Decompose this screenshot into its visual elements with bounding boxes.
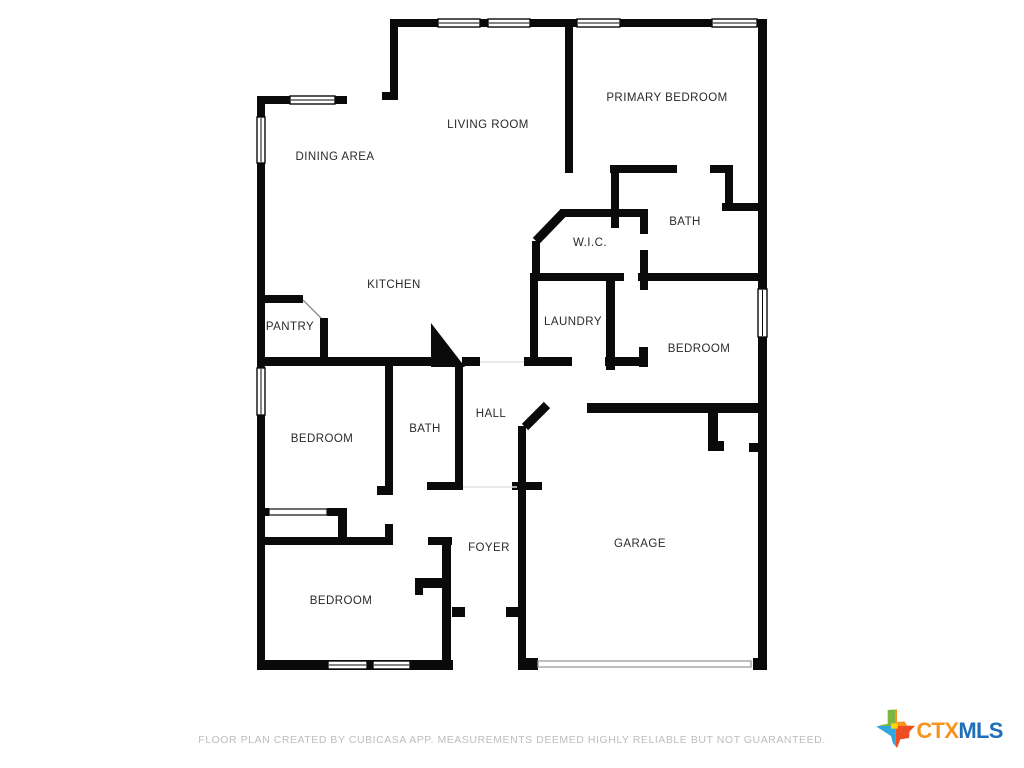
room-label-kitchen: KITCHEN [367, 279, 421, 291]
wall-segment [560, 209, 645, 217]
logo-text-ctx: CTX [916, 718, 959, 743]
wall-segment [338, 508, 347, 538]
room-label-garage: GARAGE [614, 538, 666, 550]
wall-segment [638, 273, 766, 281]
wall-segment [530, 273, 538, 365]
wall-segment [610, 165, 677, 173]
wall-segment [708, 441, 724, 451]
wall-segment [455, 363, 463, 484]
room-label-living-room: LIVING ROOM [447, 119, 529, 131]
room-label-bedroom-left: BEDROOM [291, 433, 354, 445]
wall-segment [462, 357, 480, 366]
wall-segment [390, 19, 398, 100]
wall-segment [722, 203, 766, 211]
wall-segment [257, 357, 432, 366]
wall-segment-angled [431, 323, 465, 367]
wall-segment [367, 660, 373, 670]
wall-segment [385, 363, 393, 495]
floor-plan-drawing: LIVING ROOMPRIMARY BEDROOMDINING AREABAT… [0, 0, 1024, 768]
wall-segment [518, 426, 526, 658]
wall-segment [415, 578, 423, 595]
wall-segment [518, 658, 538, 670]
wall-segment [452, 607, 465, 617]
room-label-bath-hall: BATH [409, 423, 441, 435]
garage-door [538, 661, 751, 667]
room-label-foyer: FOYER [468, 542, 510, 554]
room-label-laundry: LAUNDRY [544, 316, 602, 328]
wall-segment [257, 537, 393, 545]
room-label-dining-area: DINING AREA [295, 151, 374, 163]
wall-segment [532, 273, 624, 281]
wall-segment [587, 403, 766, 413]
wall-segment [606, 281, 615, 370]
logo-text-mls: MLS [958, 718, 1002, 743]
wall-segment [640, 250, 648, 290]
wall-segment [377, 486, 393, 495]
wall-segment [640, 209, 648, 234]
wall-segment [442, 537, 451, 668]
wall-segment [611, 165, 619, 228]
wall-segment [320, 318, 328, 362]
room-label-bedroom-bottom: BEDROOM [310, 595, 373, 607]
room-label-wic: W.I.C. [573, 237, 607, 249]
room-label-pantry: PANTRY [266, 321, 314, 333]
room-label-primary-bedroom: PRIMARY BEDROOM [606, 92, 727, 104]
wall-segment-diagonal [536, 212, 564, 241]
wall-segment [524, 357, 572, 366]
wall-segment [382, 92, 398, 100]
wall-segment [512, 482, 542, 490]
ctxmls-logo: CTXMLS [876, 708, 1010, 752]
wall-segment [257, 508, 269, 516]
room-label-hall: HALL [476, 408, 507, 420]
wall-segment-diagonal [525, 405, 547, 427]
wall-segment [749, 443, 759, 452]
wall-segment [506, 607, 519, 617]
wall-segment [385, 524, 393, 537]
room-label-bedroom-right: BEDROOM [668, 343, 731, 355]
wall-segment [565, 19, 573, 173]
logo-text: CTXMLS [916, 718, 1002, 743]
wall-segment [427, 482, 463, 490]
wall-segment [639, 347, 648, 367]
floor-plan-page: LIVING ROOMPRIMARY BEDROOMDINING AREABAT… [0, 0, 1024, 768]
wall-segment [263, 295, 303, 303]
disclaimer-text: FLOOR PLAN CREATED BY CUBICASA APP. MEAS… [0, 734, 1024, 746]
sliding-closet-door [269, 509, 327, 515]
room-label-bath-primary: BATH [669, 216, 701, 228]
texas-state-icon [876, 708, 915, 748]
wall-segment [753, 658, 767, 670]
door-leaf [303, 300, 321, 318]
wall-segment [758, 19, 767, 670]
